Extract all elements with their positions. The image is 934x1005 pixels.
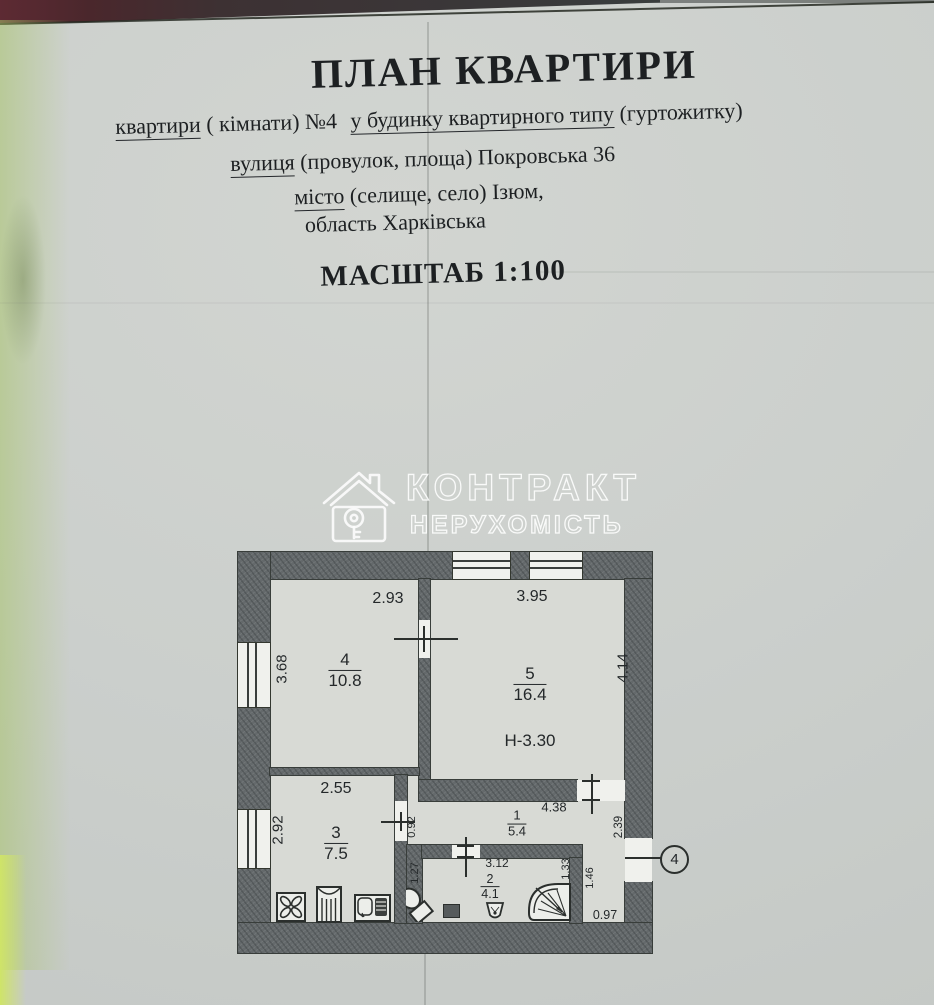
dimension-label: 3.68 bbox=[274, 654, 291, 683]
kitchen-column-icon bbox=[316, 886, 342, 923]
dimension-label: 1.27 bbox=[409, 862, 421, 883]
dim-mark bbox=[582, 799, 600, 801]
wall-left-upper bbox=[238, 552, 270, 643]
wall-top-pier bbox=[510, 552, 530, 579]
wall-room4-room5 bbox=[419, 579, 430, 801]
wall-top-left bbox=[238, 552, 453, 579]
door-entrance bbox=[625, 838, 652, 882]
wall-right-upper bbox=[625, 579, 652, 838]
entrance-leader-line bbox=[625, 857, 662, 859]
entrance-number-badge: 4 bbox=[660, 845, 689, 874]
washing-machine-icon bbox=[443, 904, 460, 918]
stove-icon bbox=[276, 892, 306, 922]
street-line: вулиця (провулок, площа) Покровська 36 bbox=[230, 141, 615, 177]
agency-watermark: КОНТРАКТ НЕРУХОМІСТЬ bbox=[318, 461, 648, 551]
dim-mark bbox=[457, 845, 474, 847]
room-number-area: 410.8 bbox=[328, 650, 361, 690]
kitchen-sink-icon bbox=[354, 894, 391, 922]
dimension-label: 4.14 bbox=[615, 653, 632, 682]
dimension-label: 1.46 bbox=[584, 867, 596, 888]
watermark-brand: КОНТРАКТ bbox=[406, 467, 641, 509]
dimension-label: 2.39 bbox=[613, 816, 625, 838]
dim-mark bbox=[400, 812, 402, 831]
house-key-icon bbox=[318, 463, 400, 545]
washbasin-icon bbox=[485, 901, 505, 921]
wall-left-middle bbox=[238, 707, 270, 810]
wall-top-corner bbox=[582, 552, 652, 579]
wall-room4-room3 bbox=[270, 768, 419, 775]
door-room5-hall bbox=[577, 780, 625, 801]
dimension-label: 2.93 bbox=[372, 590, 403, 608]
dim-mark bbox=[457, 856, 474, 858]
dimension-label: 3.12 bbox=[485, 856, 508, 870]
dimension-label: 0.97 bbox=[593, 908, 617, 922]
building-type-label: у будинку квартирного типу bbox=[350, 101, 614, 135]
dimension-label: 0.92 bbox=[406, 816, 418, 837]
dimension-label: 4.38 bbox=[541, 800, 566, 815]
page-title: ПЛАН КВАРТИРИ bbox=[310, 40, 697, 98]
room-number-area: 516.4 bbox=[513, 664, 546, 704]
street-label: вулиця bbox=[230, 149, 295, 178]
window-top-1 bbox=[453, 552, 510, 579]
room-number-area: 24.1 bbox=[481, 872, 500, 902]
photo-edge-green-streak bbox=[0, 855, 26, 1005]
city-label: місто bbox=[294, 183, 345, 211]
wall-bottom bbox=[238, 923, 652, 953]
window-left-room3 bbox=[238, 810, 270, 868]
room-number-area: 15.4 bbox=[507, 809, 526, 840]
scale-label: МАСШТАБ 1:100 bbox=[320, 254, 566, 293]
window-left-room4 bbox=[238, 643, 270, 707]
ceiling-height-label: Н-3.30 bbox=[504, 731, 555, 751]
dim-mark bbox=[582, 780, 600, 782]
apartment-label: квартири bbox=[115, 112, 201, 141]
wall-room5-hall bbox=[419, 780, 577, 801]
toilet-icon bbox=[406, 882, 446, 922]
corner-bath-icon bbox=[528, 883, 572, 922]
dimension-label: 1.33 bbox=[560, 858, 572, 879]
region-line: область Харківська bbox=[305, 207, 487, 238]
floor-plan: 2.93 3.68 410.8 3.95 4.14 516.4 Н-3.30 2… bbox=[236, 540, 711, 960]
dimension-label: 2.92 bbox=[270, 815, 287, 844]
photographed-document: ПЛАН КВАРТИРИ квартири ( кімнати) №4 у б… bbox=[0, 0, 934, 1005]
city-line: місто (селище, село) Ізюм, bbox=[294, 178, 544, 211]
dimension-label: 2.55 bbox=[320, 780, 351, 798]
apartment-line: квартири ( кімнати) №4 у будинку квартир… bbox=[115, 98, 743, 140]
dim-mark bbox=[423, 626, 425, 652]
dimension-label: 3.95 bbox=[516, 588, 547, 606]
room-number-area: 37.5 bbox=[324, 823, 348, 863]
watermark-subtitle: НЕРУХОМІСТЬ bbox=[410, 511, 624, 540]
window-top-2 bbox=[530, 552, 582, 579]
dim-mark bbox=[394, 638, 458, 640]
document-header: ПЛАН КВАРТИРИ квартири ( кімнати) №4 у б… bbox=[0, 0, 934, 330]
